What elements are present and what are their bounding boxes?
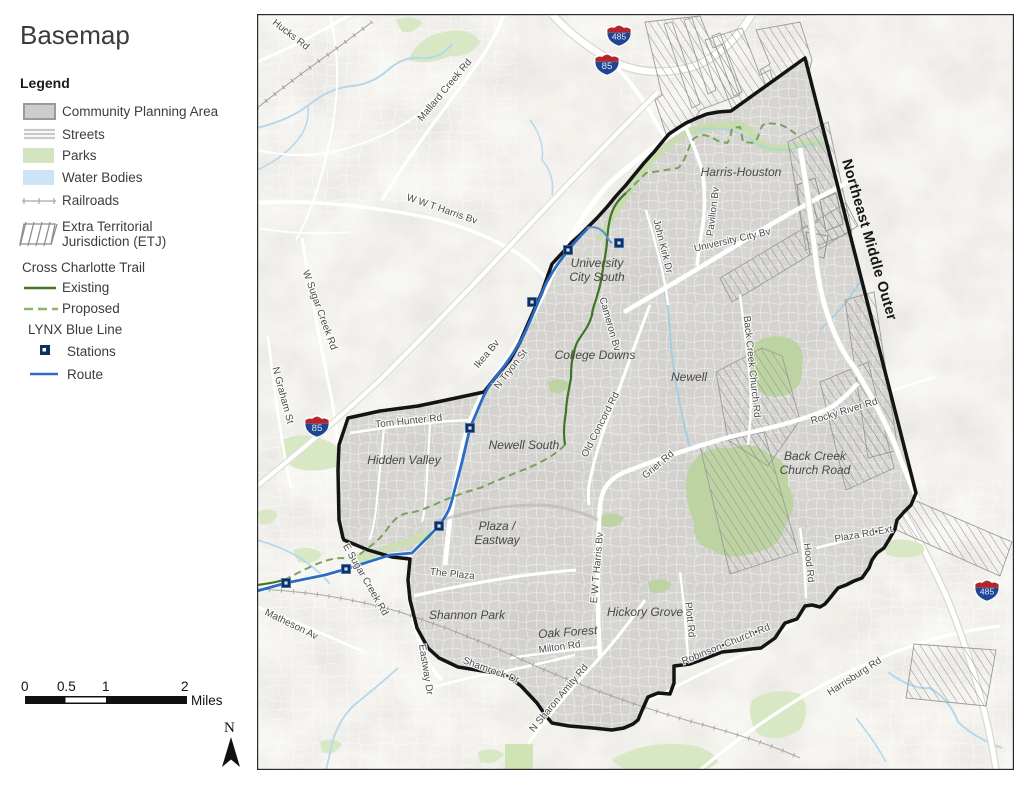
svg-text:485: 485 xyxy=(612,32,627,42)
svg-text:Stations: Stations xyxy=(67,344,116,359)
svg-text:Newell South: Newell South xyxy=(489,438,560,452)
svg-text:2: 2 xyxy=(181,679,189,694)
svg-text:85: 85 xyxy=(312,423,323,434)
svg-text:0.5: 0.5 xyxy=(57,679,76,694)
svg-text:485: 485 xyxy=(980,587,995,597)
svg-text:Eastway: Eastway xyxy=(474,533,520,547)
svg-text:Jurisdiction (ETJ): Jurisdiction (ETJ) xyxy=(62,234,166,249)
svg-text:0: 0 xyxy=(21,679,29,694)
svg-text:Extra Territorial: Extra Territorial xyxy=(62,219,153,234)
svg-text:Shannon Park: Shannon Park xyxy=(429,608,506,622)
svg-text:Streets: Streets xyxy=(62,127,105,142)
svg-text:Newell: Newell xyxy=(671,370,707,384)
svg-text:University: University xyxy=(571,256,625,270)
svg-text:City South: City South xyxy=(569,270,625,284)
svg-text:LYNX Blue Line: LYNX Blue Line xyxy=(28,322,122,337)
svg-text:Parks: Parks xyxy=(62,148,97,163)
svg-text:N: N xyxy=(224,720,235,736)
svg-text:1: 1 xyxy=(102,679,110,694)
svg-text:College Downs: College Downs xyxy=(555,348,636,362)
svg-text:Hickory Grove: Hickory Grove xyxy=(607,605,683,619)
svg-text:Cross Charlotte Trail: Cross Charlotte Trail xyxy=(22,260,145,275)
svg-text:Existing: Existing xyxy=(62,280,109,295)
svg-text:Church Road: Church Road xyxy=(780,463,851,477)
svg-text:Harris-Houston: Harris-Houston xyxy=(701,165,782,179)
svg-text:Railroads: Railroads xyxy=(62,193,119,208)
svg-text:Proposed: Proposed xyxy=(62,301,120,316)
svg-text:Community Planning Area: Community Planning Area xyxy=(62,104,219,119)
svg-text:85: 85 xyxy=(602,61,613,72)
svg-text:Water Bodies: Water Bodies xyxy=(62,170,143,185)
svg-text:Plaza /: Plaza / xyxy=(479,519,517,533)
svg-text:Route: Route xyxy=(67,367,103,382)
svg-text:Hidden Valley: Hidden Valley xyxy=(367,453,442,467)
svg-text:Back Creek: Back Creek xyxy=(784,449,847,463)
svg-text:Miles: Miles xyxy=(191,693,223,708)
